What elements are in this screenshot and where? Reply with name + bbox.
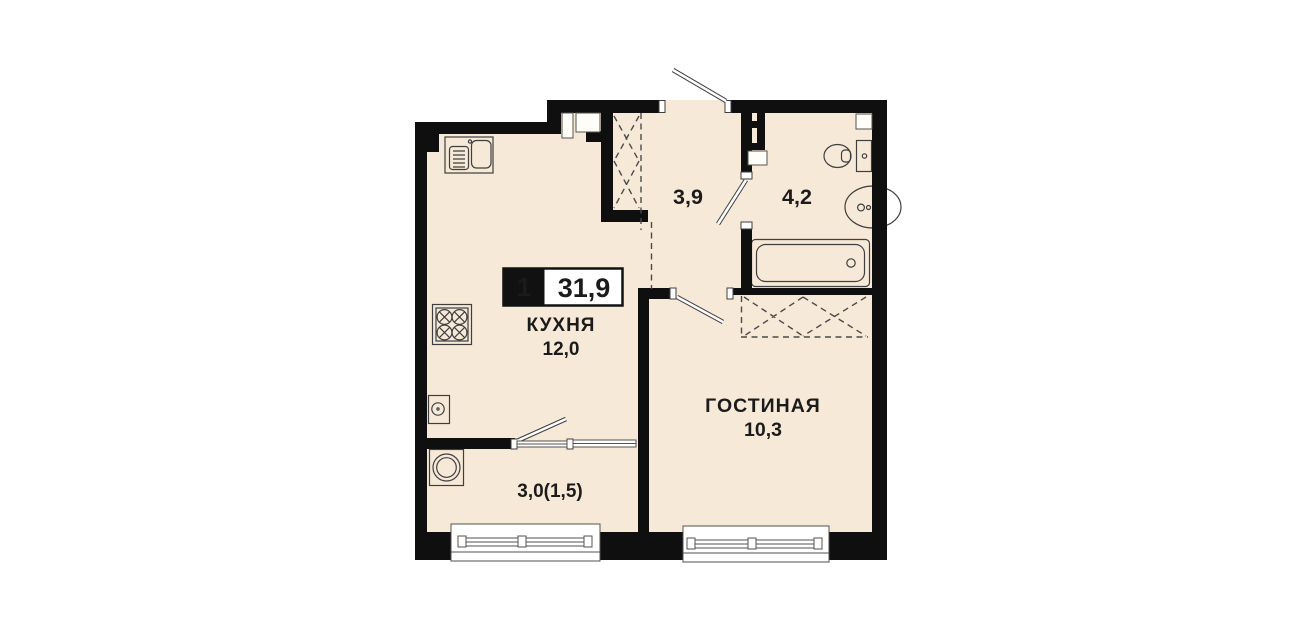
kitchen-label: КУХНЯ [527, 315, 596, 336]
badge-total-area: 31,9 [558, 273, 611, 303]
living-room-area: 10,3 [744, 419, 782, 441]
balcony-window [451, 524, 600, 561]
living-room-label: ГОСТИНАЯ [705, 395, 821, 417]
bathroom-area: 4,2 [782, 185, 812, 209]
unit-badge: 1 31,9 [504, 269, 623, 306]
kitchen-area: 12,0 [543, 339, 580, 360]
floor-area [427, 100, 872, 532]
hallway-area: 3,9 [673, 185, 703, 209]
floor-plan-page: 1 31,9 КУХНЯ 12,0 3,9 4,2 ГОСТИНАЯ 10,3 … [0, 0, 1301, 630]
entrance-threshold-floor [663, 100, 728, 113]
living-room-window [683, 526, 829, 562]
badge-rooms-count: 1 [517, 272, 531, 302]
balcony-door-window [517, 440, 636, 447]
balcony-area: 3,0(1,5) [517, 481, 582, 502]
floor-plan: 1 31,9 КУХНЯ 12,0 3,9 4,2 ГОСТИНАЯ 10,3 … [0, 0, 1301, 630]
floor-polygon [427, 113, 872, 532]
